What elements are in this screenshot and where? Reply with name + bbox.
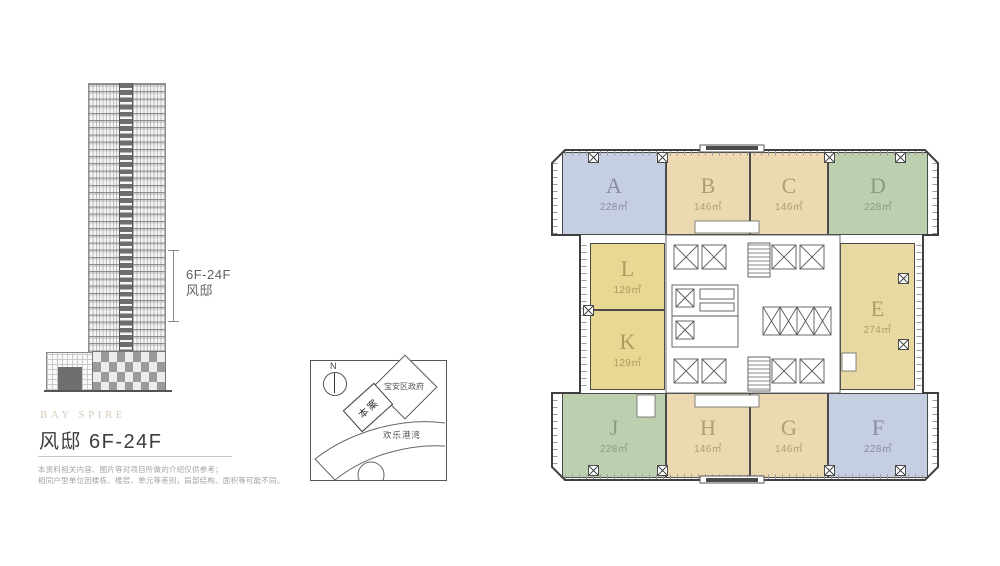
unit-A: A 228㎡ — [562, 152, 666, 235]
unit-letter: B — [701, 175, 716, 197]
page-title: 风邸 6F-24F — [39, 425, 163, 454]
bracket-cap-top — [168, 250, 179, 251]
column-marker-icon — [657, 465, 668, 476]
unit-letter: C — [782, 175, 797, 197]
floor-plan: A 228㎡ B 146㎡ C 146㎡ D 228㎡ E 274㎡ F 228… — [545, 143, 940, 485]
compass-needle-icon — [334, 373, 335, 393]
podium-dark-block — [58, 367, 82, 391]
unit-letter: H — [700, 417, 716, 439]
unit-letter: L — [621, 258, 634, 280]
tower-core-stripe — [119, 83, 133, 392]
podium-checker — [92, 351, 166, 391]
floor-range-label: 6F-24F 风邸 — [186, 267, 231, 299]
unit-area: 146㎡ — [694, 198, 722, 213]
unit-area: 228㎡ — [864, 440, 892, 455]
column-marker-icon — [588, 465, 599, 476]
unit-C: C 146㎡ — [750, 152, 828, 235]
column-marker-icon — [895, 152, 906, 163]
disclaimer-line-1: 本资料相关内容、图片等对项目所做的介绍仅供参考； — [38, 464, 223, 475]
unit-area: 228㎡ — [600, 440, 628, 455]
ground-line — [44, 390, 172, 392]
unit-letter: F — [872, 417, 884, 439]
unit-area: 129㎡ — [614, 281, 642, 296]
column-marker-icon — [657, 152, 668, 163]
floor-range-name: 风邸 — [186, 283, 231, 299]
column-marker-icon — [895, 465, 906, 476]
unit-D: D 228㎡ — [828, 152, 928, 235]
bay-label: 欢乐港湾 — [383, 429, 421, 441]
unit-area: 146㎡ — [694, 440, 722, 455]
unit-area: 228㎡ — [864, 198, 892, 213]
unit-letter: G — [781, 417, 797, 439]
unit-letter: K — [620, 331, 636, 353]
unit-H: H 146㎡ — [666, 393, 750, 478]
disclaimer-line-2: 相同户型单位因楼栋、楼层、单元等差别，局部结构、面积等可能不同。 — [38, 475, 284, 486]
unit-L: L 129㎡ — [590, 243, 665, 310]
title-divider — [38, 456, 232, 457]
brand-name: BAY SPIRE — [40, 409, 126, 421]
unit-area: 129㎡ — [614, 354, 642, 369]
location-map: N 宝安区政府 本案 欢乐港湾 — [310, 360, 447, 481]
bracket-cap-bottom — [168, 321, 179, 322]
unit-F: F 228㎡ — [828, 393, 928, 478]
unit-E: E 274㎡ — [840, 243, 915, 390]
column-marker-icon — [588, 152, 599, 163]
unit-K: K 129㎡ — [590, 310, 665, 390]
brochure-page: 6F-24F 风邸 BAY SPIRE 风邸 6F-24F 本资料相关内容、图片… — [0, 0, 1000, 566]
site-label: 本案 — [354, 394, 382, 421]
unit-letter: J — [610, 417, 619, 439]
floor-range-text: 6F-24F — [186, 267, 231, 283]
unit-G: G 146㎡ — [750, 393, 828, 478]
unit-area: 146㎡ — [775, 198, 803, 213]
column-marker-icon — [824, 152, 835, 163]
column-marker-icon — [898, 273, 909, 284]
column-marker-icon — [898, 339, 909, 350]
service-core — [666, 235, 840, 393]
column-marker-icon — [824, 465, 835, 476]
floor-range-bracket — [173, 250, 174, 322]
unit-J: J 228㎡ — [562, 393, 666, 478]
unit-area: 274㎡ — [864, 321, 892, 336]
north-label: N — [330, 361, 337, 371]
unit-letter: E — [871, 298, 884, 320]
government-label: 宝安区政府 — [375, 381, 433, 392]
column-marker-icon — [583, 305, 594, 316]
unit-letter: D — [870, 175, 886, 197]
unit-B: B 146㎡ — [666, 152, 750, 235]
unit-letter: A — [606, 175, 622, 197]
unit-area: 228㎡ — [600, 198, 628, 213]
unit-area: 146㎡ — [775, 440, 803, 455]
unit-fixtures — [637, 221, 856, 417]
north-compass-icon — [323, 372, 347, 396]
